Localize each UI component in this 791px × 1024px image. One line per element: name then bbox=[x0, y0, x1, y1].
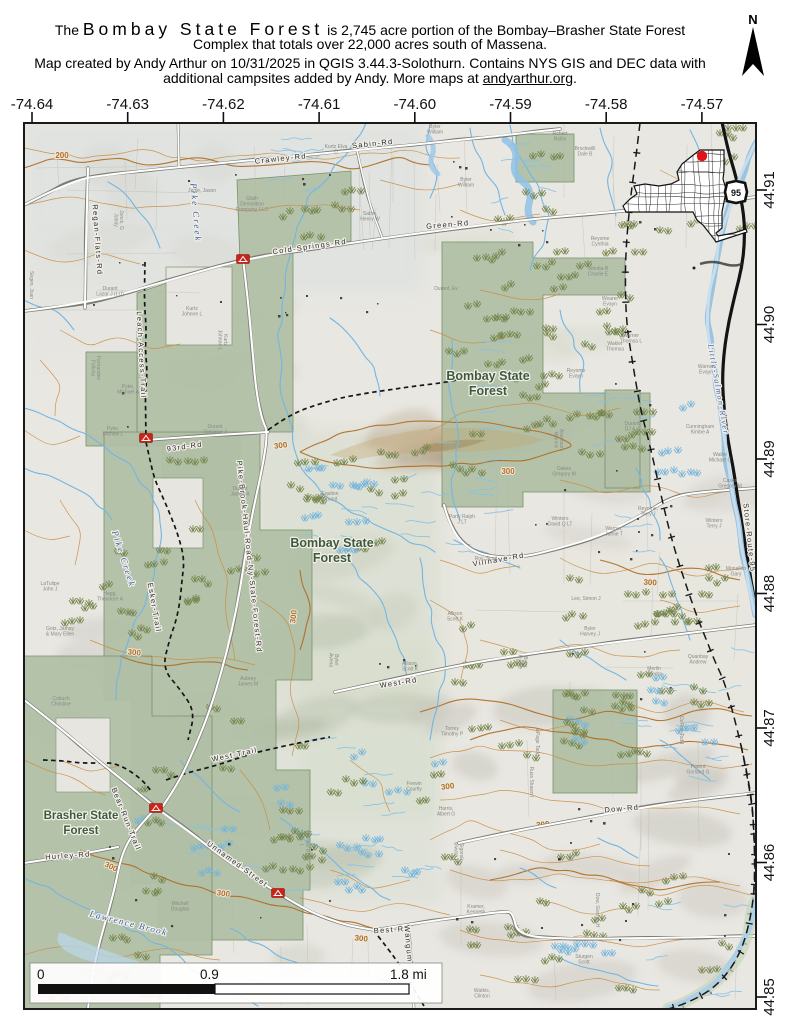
svg-text:BylerAvena: BylerAvena bbox=[328, 653, 340, 667]
svg-text:CobuchChristine: CobuchChristine bbox=[51, 696, 71, 708]
svg-text:Durant, Ev: Durant, Ev bbox=[434, 286, 458, 292]
svg-text:0.9: 0.9 bbox=[200, 967, 219, 982]
svg-text:-74.62: -74.62 bbox=[202, 96, 245, 113]
svg-text:44.85: 44.85 bbox=[761, 978, 778, 1016]
svg-text:-74.60: -74.60 bbox=[394, 96, 437, 113]
svg-text:1.8 mi: 1.8 mi bbox=[390, 967, 427, 982]
svg-text:WarnerEvayn: WarnerEvayn bbox=[698, 364, 715, 376]
svg-text:Roy, Scott: Roy, Scott bbox=[475, 556, 498, 562]
svg-text:300: 300 bbox=[354, 933, 369, 943]
svg-text:-74.59: -74.59 bbox=[489, 96, 532, 113]
svg-text:MitchellDouglas: MitchellDouglas bbox=[171, 901, 190, 913]
svg-text:300: 300 bbox=[288, 609, 299, 624]
svg-text:BylerRuime: BylerRuime bbox=[517, 655, 529, 670]
svg-text:-74.61: -74.61 bbox=[298, 96, 341, 113]
svg-text:Brasher State: Brasher State bbox=[44, 810, 119, 822]
svg-text:wPage Tadd: wPage Tadd bbox=[534, 728, 540, 756]
svg-text:44.87: 44.87 bbox=[761, 709, 778, 747]
svg-text:-74.63: -74.63 bbox=[106, 96, 149, 113]
svg-text:300: 300 bbox=[643, 578, 657, 588]
svg-text:WearerEvayn: WearerEvayn bbox=[602, 296, 619, 308]
svg-text:WarnerThomsa L: WarnerThomsa L bbox=[620, 333, 642, 345]
svg-text:AsvemarkWarrick: AsvemarkWarrick bbox=[553, 429, 565, 452]
svg-text:Forest: Forest bbox=[469, 384, 508, 398]
svg-text:Forest: Forest bbox=[63, 825, 98, 837]
svg-text:Bombay State: Bombay State bbox=[290, 536, 373, 550]
svg-text:Kramer,Kenneth: Kramer,Kenneth bbox=[467, 904, 486, 916]
svg-text:AllisonScott K: AllisonScott K bbox=[447, 611, 464, 623]
svg-text:QuanbayAndrew: QuanbayAndrew bbox=[688, 654, 709, 666]
svg-text:Segen, Joan: Segen, Joan bbox=[28, 271, 34, 299]
svg-text:Reyome,Terry J: Reyome,Terry J bbox=[638, 506, 658, 518]
svg-text:Sigorxiksilware R: Sigorxiksilware R bbox=[453, 842, 465, 863]
svg-text:Warner,Jamie T: Warner,Jamie T bbox=[605, 526, 623, 538]
svg-text:0: 0 bbox=[37, 967, 45, 982]
svg-text:Lee, Simon J: Lee, Simon J bbox=[571, 596, 601, 602]
svg-text:DeRae Todd: DeRae Todd bbox=[678, 716, 684, 744]
svg-text:BrockwilliDale B: BrockwilliDale B bbox=[575, 146, 596, 158]
svg-text:DurantDJ & J: DurantDJ & J bbox=[624, 421, 640, 433]
svg-text:300: 300 bbox=[127, 647, 142, 657]
svg-text:MerlinKendra: MerlinKendra bbox=[646, 666, 662, 678]
svg-text:Russ Shawn I: Russ Shawn I bbox=[528, 767, 534, 798]
svg-text:AubreyJames M: AubreyJames M bbox=[238, 676, 258, 688]
svg-text:300: 300 bbox=[501, 467, 515, 476]
svg-text:WintersTerry J: WintersTerry J bbox=[706, 518, 723, 530]
svg-text:BylerWilliam: BylerWilliam bbox=[427, 124, 443, 136]
svg-text:44.89: 44.89 bbox=[761, 440, 778, 478]
svg-text:200: 200 bbox=[55, 151, 69, 160]
svg-text:RobertRollin: RobertRollin bbox=[552, 131, 568, 143]
svg-text:BylerWilliam: BylerWilliam bbox=[458, 177, 474, 189]
svg-text:44.88: 44.88 bbox=[761, 575, 778, 613]
svg-text:300: 300 bbox=[216, 888, 231, 899]
svg-text:Jegle, Jason: Jegle, Jason bbox=[188, 188, 216, 194]
svg-text:-74.57: -74.57 bbox=[681, 96, 724, 113]
svg-text:44.86: 44.86 bbox=[761, 844, 778, 882]
svg-text:Wentla-BCharlie E: Wentla-BCharlie E bbox=[588, 266, 609, 278]
svg-text:Bombay State: Bombay State bbox=[446, 369, 529, 383]
svg-text:95: 95 bbox=[731, 188, 741, 198]
svg-text:-74.64: -74.64 bbox=[11, 96, 54, 113]
svg-text:Gotz, Jamay& Mary Ellen: Gotz, Jamay& Mary Ellen bbox=[46, 626, 75, 638]
svg-text:Harris,Albert G: Harris,Albert G bbox=[437, 806, 455, 818]
svg-text:ReyomeEvayn: ReyomeEvayn bbox=[567, 368, 586, 380]
svg-text:44.91: 44.91 bbox=[761, 171, 778, 209]
svg-text:Allison,Scott K: Allison,Scott K bbox=[402, 661, 419, 673]
svg-text:Forest: Forest bbox=[313, 551, 352, 565]
svg-text:Watkis,Clinton: Watkis,Clinton bbox=[474, 988, 490, 1000]
svg-text:300: 300 bbox=[273, 440, 288, 451]
svg-text:LaTulipeJohn J: LaTulipeJohn J bbox=[41, 581, 60, 593]
svg-text:-74.58: -74.58 bbox=[585, 96, 628, 113]
svg-text:EquitonChund: EquitonChund bbox=[322, 491, 339, 503]
svg-text:DurantJames A: DurantJames A bbox=[230, 486, 250, 498]
svg-text:Dow, George H: Dow, George H bbox=[594, 893, 600, 928]
svg-text:44.90: 44.90 bbox=[761, 306, 778, 344]
svg-text:300: 300 bbox=[440, 781, 455, 792]
svg-text:FrewinCourtly: FrewinCourtly bbox=[406, 781, 422, 793]
svg-text:Sabin,Henry W: Sabin,Henry W bbox=[360, 211, 380, 223]
svg-text:ReyomeCynthia: ReyomeCynthia bbox=[591, 236, 610, 248]
